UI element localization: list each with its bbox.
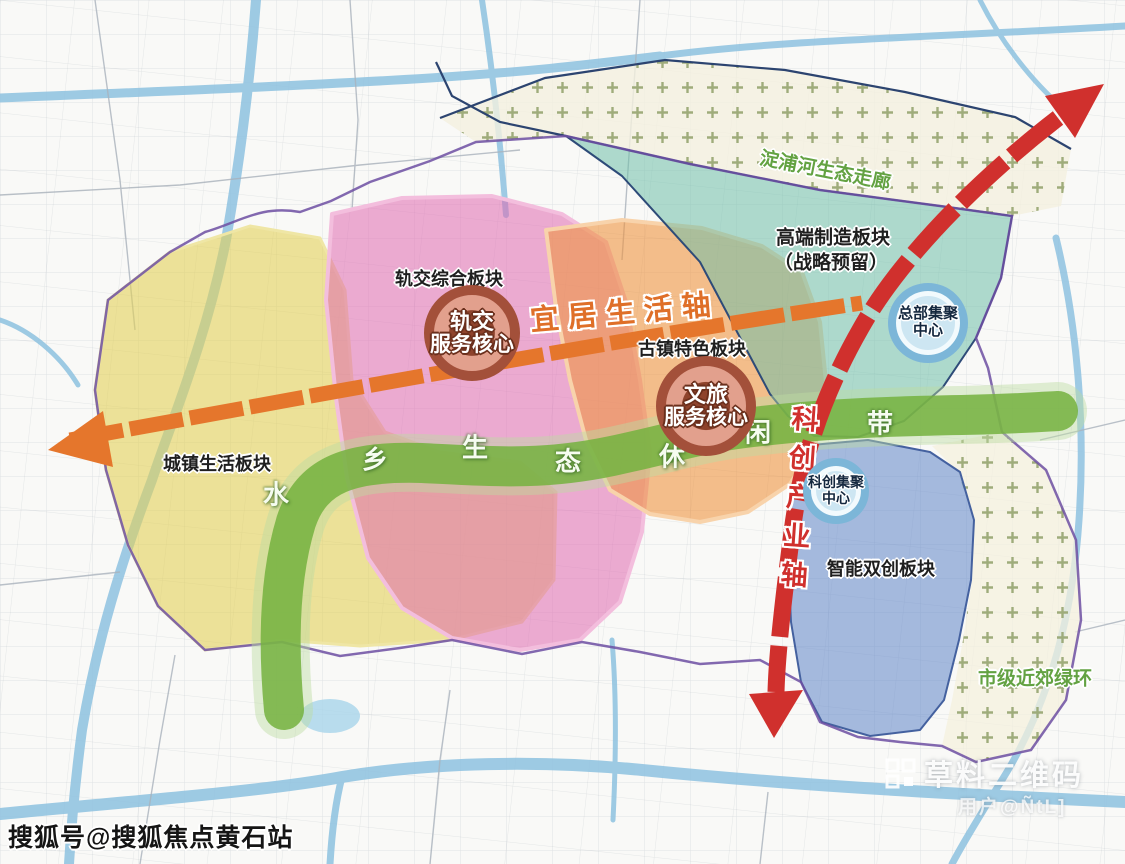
headquarters-cluster-circle: 总部集聚 中心 [888, 283, 968, 363]
qr-watermark-label: 草料二维码 [924, 752, 1084, 794]
eco-belt-char-4: 态 [555, 448, 581, 477]
eco-belt-char-7: 带 [867, 410, 893, 439]
eco-belt-char-3: 生 [462, 434, 488, 463]
planning-map: 轨交综合板块 古镇特色板块 高端制造板块 （战略预留） 城镇生活板块 智能双创板… [0, 0, 1125, 864]
rail-service-core-line1: 轨交 [450, 310, 494, 334]
map-canvas [0, 0, 1125, 864]
rail-service-core-circle: 轨交 服务核心 [424, 285, 520, 381]
headquarters-cluster-line1: 总部集聚 [898, 306, 958, 323]
sohu-watermark: 搜狐号@搜狐焦点黄石站 [8, 818, 293, 854]
rail-service-core-line2: 服务核心 [430, 334, 514, 357]
scitech-cluster-circle: 科创集聚 中心 [803, 458, 869, 524]
qr-watermark-user: 用户@ÑtL] [958, 792, 1067, 819]
zone-label-high-end-mfg-note: （战略预留） [774, 254, 888, 275]
culture-tourism-core-circle: 文旅 服务核心 [656, 356, 756, 456]
headquarters-cluster-line2: 中心 [913, 323, 943, 340]
qr-watermark: 草料二维码 [884, 752, 1084, 794]
qr-icon [884, 757, 916, 789]
culture-tourism-core-line2: 服务核心 [664, 407, 748, 430]
scitech-cluster-line1: 科创集聚 [808, 475, 864, 491]
culture-tourism-core-line1: 文旅 [684, 383, 728, 407]
zone-label-high-end-mfg: 高端制造板块 [776, 229, 890, 250]
eco-belt-char-2: 乡 [362, 446, 388, 475]
zone-label-smart-innovation: 智能双创板块 [827, 560, 935, 580]
scitech-cluster-line2: 中心 [822, 491, 850, 507]
zone-label-green-ring: 市级近郊绿环 [978, 670, 1092, 691]
zone-label-town-life: 城镇生活板块 [163, 455, 271, 475]
eco-belt-char-1: 水 [263, 481, 289, 510]
